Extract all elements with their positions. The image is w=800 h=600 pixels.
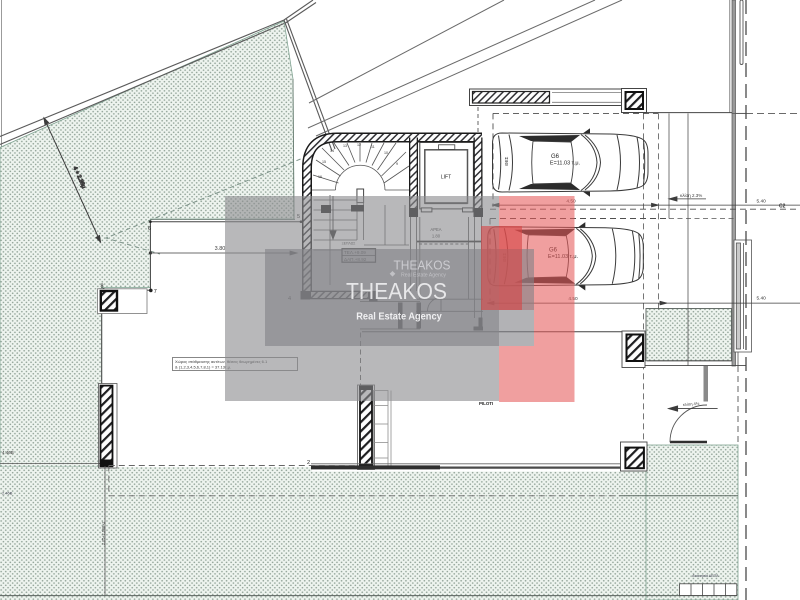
svg-text:9: 9 — [396, 162, 398, 166]
svg-text:6: 6 — [148, 226, 151, 232]
svg-text:13: 13 — [343, 144, 347, 148]
svg-text:C2: C2 — [779, 204, 786, 210]
svg-text:14: 14 — [330, 149, 334, 153]
svg-text:16: 16 — [318, 175, 322, 179]
svg-text:ΘΕΣ: ΘΕΣ — [504, 156, 509, 166]
svg-text:5.40: 5.40 — [757, 296, 767, 302]
svg-text:ΡΙLΟΤΙ: ΡΙLΟΤΙ — [479, 401, 493, 406]
svg-text:THEAKOS: THEAKOS — [394, 258, 451, 272]
svg-text:G6: G6 — [551, 154, 560, 160]
svg-text:4.46Β: 4.46Β — [2, 450, 14, 455]
svg-text:ιδιοκτησία ΔΕΠΑ: ιδιοκτησία ΔΕΠΑ — [692, 574, 719, 578]
svg-text:THEAKOS: THEAKOS — [346, 278, 447, 304]
svg-text:& (1,2,3,4,5,6,7,8,1) = 37.13τ: & (1,2,3,4,5,6,7,8,1) = 37.13τ.μ. — [175, 365, 231, 370]
svg-text:3.80: 3.80 — [215, 246, 226, 252]
svg-text:11: 11 — [371, 145, 375, 149]
svg-text:2.05+2.688+2: 2.05+2.688+2 — [102, 522, 106, 545]
svg-text:LIFT: LIFT — [441, 175, 451, 181]
svg-text:7: 7 — [154, 289, 157, 295]
svg-text:Real Estate Agency: Real Estate Agency — [356, 310, 442, 322]
svg-text:5.40: 5.40 — [757, 199, 767, 205]
svg-text:15: 15 — [322, 160, 326, 164]
svg-text:Ε=11.03 τ.μ.: Ε=11.03 τ.μ. — [550, 161, 581, 167]
svg-text:12: 12 — [357, 143, 361, 147]
svg-text:κλίση 2.3%: κλίση 2.3% — [680, 193, 702, 198]
svg-text:2.46Β: 2.46Β — [2, 491, 13, 496]
svg-text:10: 10 — [384, 151, 388, 155]
